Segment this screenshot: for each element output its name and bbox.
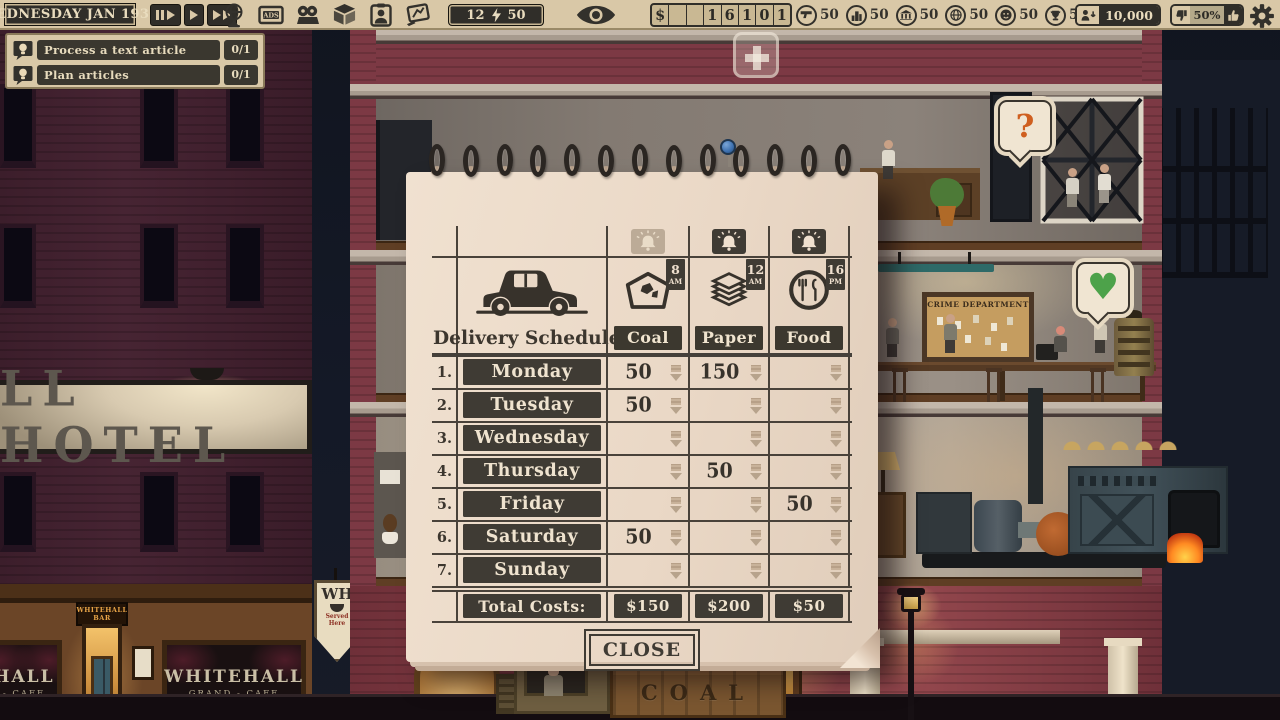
odometer-digit (669, 5, 686, 25)
qty-stepper (829, 496, 843, 513)
warehouse-worker (1064, 168, 1080, 207)
stepper-down[interactable] (670, 572, 682, 579)
paper-icon: 12 AM (688, 258, 768, 322)
day-label: Thursday (463, 458, 601, 484)
stepper-down[interactable] (830, 506, 842, 513)
row-number: 4. (432, 456, 456, 487)
stepper-down[interactable] (750, 473, 762, 480)
qty-cell-paper: 150 (688, 357, 768, 388)
row-number: 7. (432, 555, 456, 586)
bathroom-sliver (374, 452, 406, 558)
stepper-down[interactable] (830, 440, 842, 447)
spiral-ring (597, 144, 615, 180)
stat-bank[interactable]: 50 (896, 5, 939, 26)
trophy-icon (1045, 5, 1066, 26)
day-label: Saturday (463, 524, 601, 550)
qty-stepper (829, 529, 843, 546)
question-bubble[interactable]: ? (998, 100, 1052, 152)
qty-stepper (749, 364, 763, 381)
quest-progress: 0/1 (224, 65, 258, 85)
scheduler-day-row: 6.Saturday50 (432, 522, 852, 555)
toolbar-icons: ADS (220, 2, 432, 28)
qty-value: 50 (608, 360, 669, 384)
close-button[interactable]: CLOSE (589, 634, 695, 666)
qty-cell-food: 50 (768, 489, 850, 520)
stat-value: 50 (1019, 7, 1038, 23)
odometer-digit: 1 (704, 5, 721, 25)
brass-machine (1114, 318, 1154, 376)
qty-stepper (749, 430, 763, 447)
delivery-car-icon (456, 258, 606, 322)
qty-value: 150 (690, 360, 749, 384)
qty-stepper (749, 562, 763, 579)
spiral-ring (529, 144, 547, 180)
spiral-ring (699, 144, 717, 180)
journalist (942, 314, 958, 353)
day-label: Tuesday (463, 392, 601, 418)
chair (986, 368, 1004, 402)
stepper-down[interactable] (750, 572, 762, 579)
quest-tracker: Process a text article 0/1 Plan articles… (5, 33, 265, 89)
eye-icon (576, 5, 616, 25)
gun-icon (796, 5, 817, 26)
qty-cell-paper (688, 555, 768, 586)
chair (1090, 368, 1108, 402)
scheduler-day-row: 2.Tuesday50 (432, 390, 852, 423)
delivery-scheduler-panel: 8 AM 12 AM 16 PM (404, 144, 884, 664)
quest-label: Process a text article (37, 40, 220, 60)
hotel-building: LL HOTEL HALL - CAFE WHITEHALL BAR WHITE… (0, 28, 312, 720)
cafe-door-sign: WHITEHALL BAR (76, 602, 128, 626)
stepper-down[interactable] (670, 539, 682, 546)
spiral-ring (766, 144, 784, 180)
idea-bubble-icon (12, 39, 33, 60)
ads-icon[interactable]: ADS (257, 2, 285, 28)
qty-stepper (749, 463, 763, 480)
world-icon (945, 5, 966, 26)
qty-cell-coal: 50 (606, 390, 688, 421)
spiral-ring (631, 144, 649, 180)
scheduler-day-row: 7.Sunday (432, 555, 852, 588)
qty-cell-food (768, 423, 850, 454)
quest-row: Process a text article 0/1 (12, 39, 258, 60)
spiral-ring (834, 144, 852, 180)
stat-value: 50 (920, 7, 939, 23)
quest-progress: 0/1 (224, 40, 258, 60)
day-rows: 1.Monday501502.Tuesday503.Wednesday4.Thu… (432, 357, 852, 588)
stepper-down[interactable] (830, 407, 842, 414)
qty-cell-coal: 50 (606, 357, 688, 388)
scheduler-table: 8 AM 12 AM 16 PM (432, 226, 852, 677)
spiral-ring (563, 144, 581, 180)
food-column-label: Food (775, 326, 843, 350)
quest-label: Plan articles (37, 65, 220, 85)
stepper-down[interactable] (670, 473, 682, 480)
odometer-digit: 0 (756, 5, 773, 25)
menu-display-box (132, 646, 154, 680)
coffee-cup-icon (330, 604, 344, 612)
row-number: 3. (432, 423, 456, 454)
qty-stepper (829, 562, 843, 579)
approval-gauge: 50% (1170, 4, 1244, 26)
commodity-icon-row: 8 AM 12 AM 16 PM (432, 258, 852, 322)
qty-stepper (669, 397, 683, 414)
qty-stepper (749, 496, 763, 513)
printing-press-icon[interactable] (294, 2, 322, 28)
spiral-ring (428, 144, 446, 180)
stepper-down[interactable] (750, 440, 762, 447)
qty-stepper (749, 397, 763, 414)
face-icon (995, 5, 1016, 26)
plan-articles-icon[interactable] (404, 2, 432, 28)
qty-stepper (669, 364, 683, 381)
add-floor-button[interactable] (733, 32, 779, 78)
food-total: $50 (775, 594, 843, 618)
building-icon (846, 5, 867, 26)
qty-value: 50 (608, 525, 669, 549)
bank-icon (896, 5, 917, 26)
food-time-tag: 16 PM (826, 259, 845, 290)
stepper-down[interactable] (830, 572, 842, 579)
coal-time-tag: 8 AM (666, 259, 685, 290)
qty-cell-paper (688, 423, 768, 454)
stepper-down[interactable] (750, 407, 762, 414)
truck-driver (544, 675, 563, 696)
qty-cell-paper (688, 390, 768, 421)
scheduler-title: Delivery Scheduler (433, 327, 630, 349)
qty-cell-food (768, 357, 850, 388)
odometer-digit: $ (652, 5, 669, 25)
qty-cell-coal (606, 555, 688, 586)
paper-bundle-icon[interactable] (330, 2, 358, 28)
stat-value: 50 (969, 7, 988, 23)
street-lamp (893, 592, 929, 720)
qty-value: 50 (608, 393, 669, 417)
cafe-name: WHITEHALL (164, 667, 304, 687)
coal-column-label: Coal (614, 326, 682, 350)
world-news-icon[interactable] (220, 2, 248, 28)
odometer-digit: 6 (722, 5, 739, 25)
qty-cell-coal (606, 489, 688, 520)
stepper-down[interactable] (670, 374, 682, 381)
food-alarm-bell[interactable] (792, 229, 826, 254)
game-screen: LL HOTEL HALL - CAFE WHITEHALL BAR WHITE… (0, 0, 1280, 720)
day-label: Monday (463, 359, 601, 385)
qty-stepper (829, 463, 843, 480)
stepper-down[interactable] (830, 473, 842, 480)
stepper-down[interactable] (670, 440, 682, 447)
qty-stepper (829, 430, 843, 447)
spiral-ring (800, 144, 818, 180)
readers-value: 10,000 (1099, 6, 1159, 24)
spiral-ring (496, 144, 514, 180)
qty-cell-paper (688, 489, 768, 520)
qty-stepper (749, 529, 763, 546)
row-number: 2. (432, 390, 456, 421)
quest-row: Plan articles 0/1 (12, 64, 258, 85)
stat-face[interactable]: 50 (995, 5, 1038, 26)
top-bar: WEDNESDAY JAN 1930 ADS (0, 0, 1280, 30)
scheduler-day-row: 3.Wednesday (432, 423, 852, 456)
qty-cell-coal: 50 (606, 522, 688, 553)
paper-total: $200 (695, 594, 763, 618)
money-odometer: $16101 (650, 3, 792, 27)
row-number: 6. (432, 522, 456, 553)
spiral-ring (665, 144, 683, 180)
play-button[interactable] (184, 4, 204, 26)
qty-stepper (669, 463, 683, 480)
stepper-down[interactable] (830, 539, 842, 546)
stepper-down[interactable] (670, 506, 682, 513)
qty-cell-paper: 50 (688, 456, 768, 487)
day-label: Friday (463, 491, 601, 517)
paper-time-tag: 12 AM (746, 259, 765, 290)
stepper-down[interactable] (750, 506, 762, 513)
qty-stepper (669, 496, 683, 513)
lightning-icon (492, 8, 501, 22)
truck-coal-label: COAL (641, 680, 755, 705)
chair (892, 368, 910, 402)
idea-bubble-icon (12, 64, 33, 85)
date-display: WEDNESDAY JAN 1930 (4, 3, 136, 26)
stat-value: 50 (870, 7, 889, 23)
scheduler-day-row: 1.Monday50150 (432, 357, 852, 390)
settings-gear-button[interactable] (1248, 2, 1276, 29)
paper-alarm-bell[interactable] (712, 229, 746, 254)
qty-cell-coal (606, 423, 688, 454)
hotel-sign-text: LL HOTEL (0, 360, 307, 473)
notepad-paper: 8 AM 12 AM 16 PM (406, 172, 878, 662)
approval-value: 50% (1190, 6, 1224, 24)
day-label: Wednesday (463, 425, 601, 451)
stat-building[interactable]: 50 (846, 5, 889, 26)
qty-value: 50 (770, 492, 829, 516)
journalist (884, 318, 900, 357)
qty-cell-food (768, 555, 850, 586)
readers-counter: 10,000 (1075, 4, 1161, 26)
qty-stepper (669, 529, 683, 546)
alarm-bell-row (432, 226, 852, 258)
stat-value: 50 (820, 7, 839, 23)
qty-value: 50 (690, 459, 749, 483)
furnace-fire (1167, 533, 1203, 563)
qty-stepper (829, 397, 843, 414)
staff-icon[interactable] (367, 2, 395, 28)
thumb-down-icon (1172, 6, 1190, 24)
stepper-down[interactable] (830, 374, 842, 381)
scheduler-day-row: 5.Friday50 (432, 489, 852, 522)
ceiling-lamp (878, 264, 994, 272)
reader-icon (1077, 6, 1099, 24)
qty-cell-coal (606, 456, 688, 487)
eye-button[interactable] (574, 4, 618, 26)
spiral-ring (462, 144, 480, 180)
qty-cell-food (768, 456, 850, 487)
odometer-digit: 1 (739, 5, 756, 25)
totals-row: Total Costs: $150 $200 $50 (432, 592, 852, 623)
printing-press-boiler (940, 446, 1152, 564)
stepper-down[interactable] (670, 407, 682, 414)
blue-pushpin (720, 139, 736, 155)
coal-icon: 8 AM (606, 258, 688, 322)
topic-stats: 505050505050 (796, 3, 1088, 27)
qty-stepper (669, 562, 683, 579)
food-icon: 16 PM (768, 258, 850, 322)
heart-bubble[interactable]: ♥ (1076, 262, 1130, 314)
qty-stepper (829, 364, 843, 381)
stat-gun[interactable]: 50 (796, 5, 839, 26)
totals-label: Total Costs: (463, 594, 601, 618)
coal-alarm-bell[interactable] (631, 229, 665, 254)
thumb-up-icon (1224, 6, 1242, 24)
potted-plant (930, 178, 970, 226)
storage-rack (1040, 96, 1144, 224)
hotel-sign: LL HOTEL (0, 380, 312, 454)
day-label: Sunday (463, 557, 601, 583)
scheduler-day-row: 4.Thursday50 (432, 456, 852, 489)
crime-department-board: CRIME DEPARTMENT (922, 292, 1034, 362)
journalist-sitting (1052, 326, 1068, 352)
qty-stepper (669, 430, 683, 447)
row-number: 1. (432, 357, 456, 388)
odometer-digit: 1 (774, 5, 790, 25)
spiral-binding (428, 144, 852, 180)
qty-cell-food (768, 390, 850, 421)
qty-cell-food (768, 522, 850, 553)
stepper-down[interactable] (750, 539, 762, 546)
gear-icon (1249, 3, 1275, 29)
row-number: 5. (432, 489, 456, 520)
paper-column-label: Paper (695, 326, 763, 350)
coal-total: $150 (614, 594, 682, 618)
stepper-down[interactable] (750, 374, 762, 381)
qty-cell-paper (688, 522, 768, 553)
odometer-digit (687, 5, 704, 25)
column-label-row: Delivery Scheduler Coal Paper Food (432, 322, 852, 353)
svg-text:ADS: ADS (262, 12, 279, 20)
fire-escape (1158, 108, 1268, 278)
pause-button[interactable] (150, 4, 181, 26)
stat-world[interactable]: 50 (945, 5, 988, 26)
energy-badge: 12 50 (448, 4, 544, 26)
warehouse-worker (1096, 164, 1112, 203)
